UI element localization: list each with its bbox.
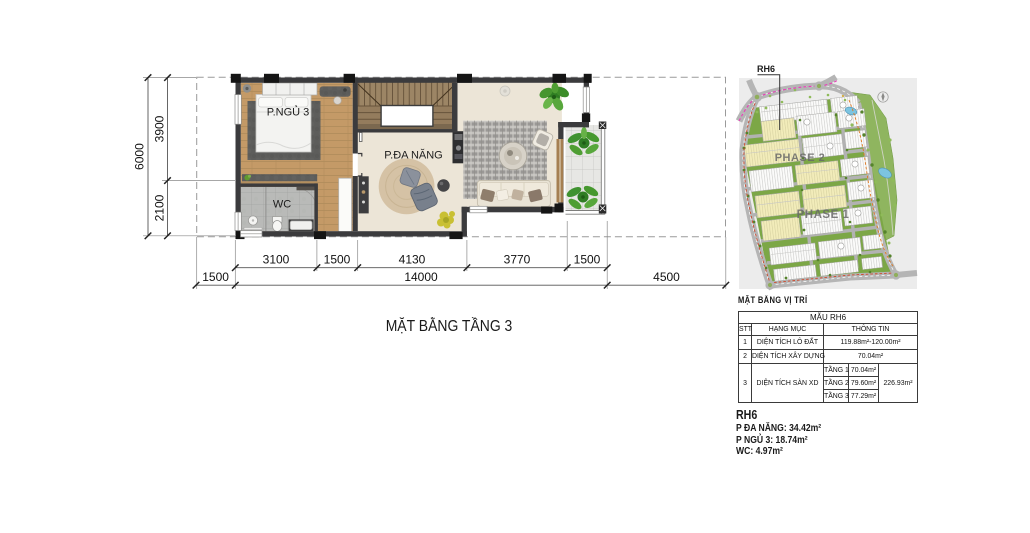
svg-text:1500: 1500 <box>202 270 229 284</box>
svg-text:RH6: RH6 <box>757 64 775 74</box>
svg-text:P.NGỦ 3: P.NGỦ 3 <box>267 106 310 119</box>
svg-text:4500: 4500 <box>653 270 680 284</box>
svg-text:14000: 14000 <box>404 270 438 284</box>
svg-text:4130: 4130 <box>399 253 426 267</box>
svg-text:3900: 3900 <box>153 115 167 142</box>
svg-text:WC: WC <box>273 199 291 211</box>
svg-text:PHASE 2: PHASE 2 <box>775 152 826 164</box>
svg-text:6000: 6000 <box>133 143 147 170</box>
svg-text:1500: 1500 <box>324 253 351 267</box>
svg-text:3770: 3770 <box>504 253 531 267</box>
svg-text:2100: 2100 <box>153 194 167 221</box>
svg-text:PHASE 1: PHASE 1 <box>797 209 850 221</box>
svg-text:P.ĐA NĂNG: P.ĐA NĂNG <box>384 149 443 162</box>
svg-text:3100: 3100 <box>263 253 290 267</box>
svg-text:1500: 1500 <box>574 253 601 267</box>
